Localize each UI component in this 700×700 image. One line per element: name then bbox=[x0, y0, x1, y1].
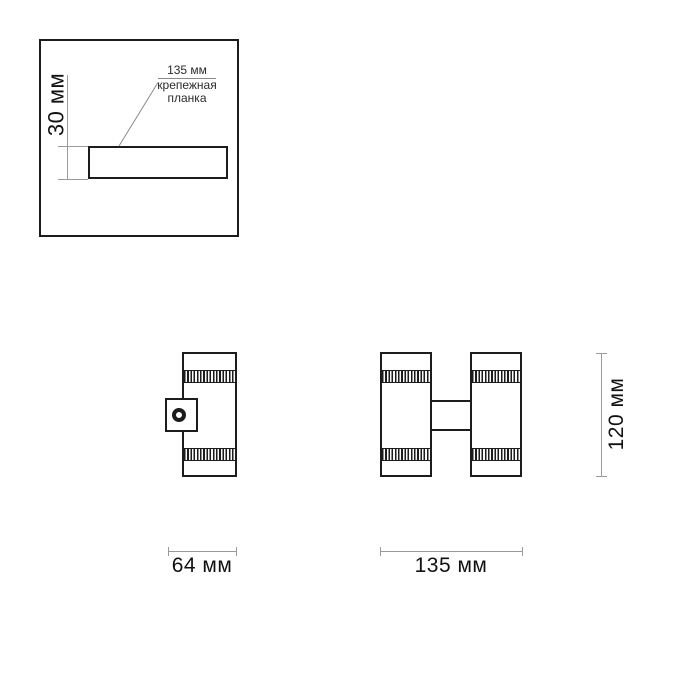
front-left-bottom-knurl-band bbox=[382, 448, 430, 461]
front-right-top-knurl-band bbox=[472, 370, 520, 383]
side-view-width-dimension-label: 64 мм bbox=[152, 554, 252, 578]
bracket-screw-hole bbox=[172, 408, 186, 422]
front-view-height-dimension-label: 120 мм bbox=[604, 376, 630, 452]
callout-part-name-line2: планка bbox=[147, 92, 227, 105]
front-left-top-knurl-band bbox=[382, 370, 430, 383]
mounting-plate-rect bbox=[88, 146, 228, 179]
side-view-top-knurl-band bbox=[184, 370, 235, 383]
front-right-bottom-knurl-band bbox=[472, 448, 520, 461]
callout-width-value: 135 мм bbox=[158, 64, 216, 79]
front-view-left-cylinder bbox=[380, 352, 432, 477]
front-view-width-dimension-label: 135 мм bbox=[401, 554, 501, 578]
front-view-right-cylinder bbox=[470, 352, 522, 477]
front-view-connector bbox=[432, 400, 470, 431]
mounting-plate-callout: 135 мм крепежная планка bbox=[147, 64, 227, 105]
inset-height-dimension-label: 30 мм bbox=[44, 71, 69, 139]
side-view-bottom-knurl-band bbox=[184, 448, 235, 461]
lamp-dimension-drawing: 30 мм 135 мм крепежная планка 64 мм 135 … bbox=[0, 0, 700, 700]
